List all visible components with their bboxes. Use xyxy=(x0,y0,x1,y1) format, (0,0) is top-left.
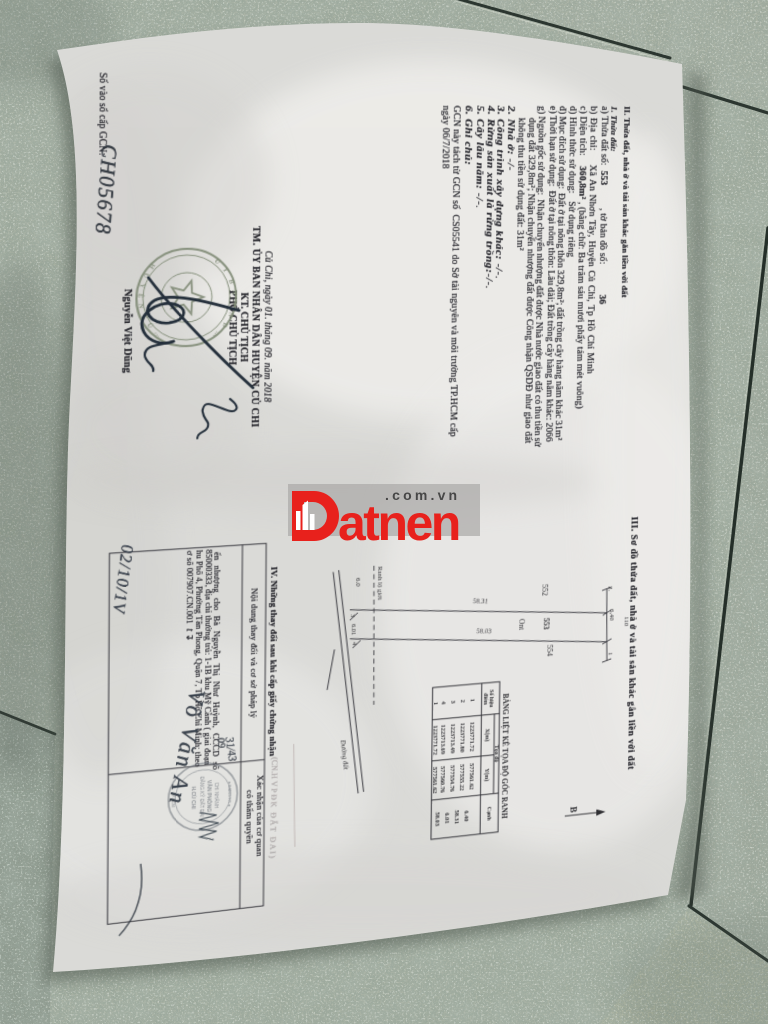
svg-text:…: … xyxy=(153,329,163,339)
svg-text:1223713.69: 1223713.69 xyxy=(439,724,446,754)
svg-text:1223771.72: 1223771.72 xyxy=(468,721,475,751)
svg-text:58.03: 58.03 xyxy=(476,628,492,635)
svg-text:6.0: 6.0 xyxy=(354,578,361,588)
svg-text:N: N xyxy=(230,300,238,306)
svg-text:1223771.72: 1223771.72 xyxy=(431,725,438,755)
svg-text:577555.22: 577555.22 xyxy=(458,764,465,791)
svg-text:Ranh lộ giới: Ranh lộ giới xyxy=(376,566,383,600)
svg-text:577560.76: 577560.76 xyxy=(438,766,445,793)
svg-text:552: 552 xyxy=(540,584,549,596)
svg-text:Y: Y xyxy=(221,266,230,274)
svg-text:1223771.80: 1223771.80 xyxy=(458,722,465,752)
svg-text:58.31: 58.31 xyxy=(453,810,460,825)
svg-text:6.40: 6.40 xyxy=(463,810,470,822)
svg-text:BẢNG LIỆT KÊ TỌA ĐỘ GÓC RANH: BẢNG LIỆT KÊ TỌA ĐỘ GÓC RANH xyxy=(500,693,511,819)
svg-text:N: N xyxy=(136,303,144,309)
svg-text:110: 110 xyxy=(623,616,630,627)
svg-text:577554.76: 577554.76 xyxy=(448,765,455,792)
svg-text:6.01: 6.01 xyxy=(350,624,357,636)
svg-text:58.03: 58.03 xyxy=(433,812,440,827)
svg-text:1: 1 xyxy=(469,698,476,702)
svg-text:Tọa độ: Tọa độ xyxy=(493,745,499,763)
svg-text:● ĐĂNG KÝ ●: ● ĐĂNG KÝ ● xyxy=(227,781,232,807)
svg-text:Cạnh: Cạnh xyxy=(485,807,491,822)
svg-text:1: 1 xyxy=(431,702,438,706)
svg-text:1223713.49: 1223713.49 xyxy=(449,723,456,753)
svg-text:3: 3 xyxy=(449,700,456,704)
svg-text:554: 554 xyxy=(545,644,554,656)
svg-text:H: H xyxy=(147,262,156,270)
svg-text:B: B xyxy=(568,806,577,813)
svg-text:atnen: atnen xyxy=(338,495,459,545)
svg-text:58.31: 58.31 xyxy=(473,598,489,605)
svg-text:Ệ: Ệ xyxy=(136,293,145,298)
svg-text:2.: 2. xyxy=(607,586,614,592)
svg-text:4: 4 xyxy=(351,642,358,647)
svg-text:577561.62: 577561.62 xyxy=(468,763,475,790)
svg-text:3: 3 xyxy=(349,614,356,618)
svg-text:X(m): X(m) xyxy=(483,728,490,742)
svg-text:Đường đất: Đường đất xyxy=(339,738,350,771)
svg-text:Y: Y xyxy=(138,283,147,290)
svg-text:CHI NHÁNH: CHI NHÁNH xyxy=(214,782,220,808)
svg-text:577561.62: 577561.62 xyxy=(430,767,437,794)
svg-text:1: 1 xyxy=(607,652,614,656)
svg-text:6,40: 6,40 xyxy=(608,609,615,622)
svg-text:4: 4 xyxy=(439,701,446,706)
svg-text:Ủ: Ủ xyxy=(213,257,223,266)
svg-text:Ont: Ont xyxy=(517,619,526,632)
svg-text:Số hiệu: Số hiệu xyxy=(488,689,495,708)
svg-text:2: 2 xyxy=(459,699,466,703)
svg-text:Y(m): Y(m) xyxy=(483,768,490,782)
svg-text:553: 553 xyxy=(542,618,551,630)
svg-text:6.01: 6.01 xyxy=(443,812,450,824)
